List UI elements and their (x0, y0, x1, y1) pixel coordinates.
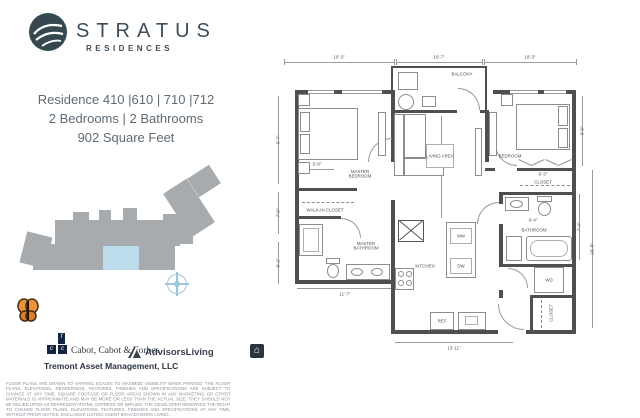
equal-housing-icon: ⌂ (250, 344, 264, 358)
sofa-back (394, 114, 404, 176)
floor-plan: 10'-3" 10'-7" 10'-3" 9'-7" 7'-6" 6'-2" 5… (270, 52, 620, 404)
building-block (73, 212, 89, 221)
room-label-closet: CLOSET (534, 180, 552, 185)
disclaimer: FLOOR PLANS ARE DRAWN TO VARYING SCALES … (6, 382, 244, 416)
bifold-door (545, 159, 558, 166)
linen-cabinet (506, 236, 522, 261)
wall (391, 110, 457, 113)
burner (398, 271, 404, 277)
room-label-living-area: LIVING AREA (426, 153, 455, 158)
closet-rod (302, 202, 354, 203)
dim-bedroom-height: 9'-8" (580, 127, 585, 136)
room-label-master-bedroom: MASTER BEDROOM (346, 169, 375, 179)
toilet-bowl (538, 202, 551, 216)
wall (499, 192, 503, 204)
toilet-bowl (327, 264, 339, 278)
window (308, 90, 334, 94)
dim-top-left: 10'-3" (333, 55, 344, 60)
room-label-kitchen: KITCHEN (415, 264, 434, 269)
brand-name: STRATUS (76, 20, 217, 43)
balcony-table (398, 72, 418, 90)
residence-bed-bath: 2 Bedrooms | 2 Bathrooms (0, 111, 252, 126)
room-label-coat-closet: CLOSET (549, 304, 554, 322)
appliance-label-ref: REF (438, 319, 447, 324)
balcony-side-table (422, 96, 436, 107)
residence-sqft: 902 Square Feet (0, 130, 252, 145)
brand-subtitle: RESIDENCES (86, 44, 173, 53)
dim-bath-width: 6'-4" (529, 218, 538, 223)
pillow (558, 106, 568, 126)
nightstand (298, 162, 310, 174)
balcony-wall (391, 66, 487, 68)
burner (398, 280, 404, 286)
dresser (489, 112, 497, 156)
room-label-bedroom: BEDROOM (499, 154, 522, 159)
dim-right-outer: 15'-8" (590, 243, 595, 254)
dim-closet-width: 6'-3" (539, 172, 548, 177)
door-arc (477, 202, 499, 224)
window (510, 90, 538, 94)
residence-numbers: Residence 410 |610 | 710 |712 (0, 92, 252, 107)
disclaimer-text: FLOOR PLANS ARE DRAWN TO VARYING SCALES … (6, 382, 230, 416)
dresser (378, 112, 386, 156)
kitchen-sink (465, 316, 478, 325)
unit-highlight (103, 246, 139, 270)
closet-rod (541, 300, 542, 328)
dim-line (396, 62, 482, 63)
ccf-logo-icon: c (58, 345, 67, 354)
dim-left-mbath: 6'-2" (276, 259, 281, 268)
nightstand (501, 94, 513, 106)
dim-line (395, 342, 513, 343)
door-arc (458, 88, 480, 110)
wall (572, 90, 576, 330)
room-label-walk-in-closet: WALK-IN CLOSET (306, 208, 343, 213)
building-block (99, 210, 111, 220)
dim-top-right: 10'-3" (524, 55, 535, 60)
dim-left-master: 9'-7" (276, 136, 281, 145)
wall (499, 224, 503, 267)
building-block (123, 208, 137, 220)
wall (530, 295, 533, 330)
sink-basin (351, 268, 363, 276)
stratus-logo-icon (28, 12, 68, 52)
door-arc (508, 268, 528, 288)
dim-kitchen-width: 13'-11" (447, 346, 460, 351)
ccf-logo-icon: c (47, 345, 56, 354)
shower-basin (303, 228, 319, 252)
dim-line (284, 62, 394, 63)
wall (530, 295, 576, 298)
sofa-seat (404, 114, 426, 158)
room-label-balcony: BALCONY (451, 72, 472, 77)
balcony-wall (391, 66, 393, 112)
door-arc (341, 218, 361, 238)
appliance-label-dw: DW (457, 264, 464, 269)
building-block (55, 220, 180, 246)
nightstand (298, 94, 310, 106)
tv-console (475, 128, 482, 176)
wall (499, 290, 503, 298)
sink-basin (371, 268, 383, 276)
dim-line (484, 62, 576, 63)
flyer-page: STRATUS RESIDENCES Residence 410 |610 | … (0, 0, 640, 418)
compass-icon (167, 274, 187, 294)
wall (299, 188, 357, 191)
dim-line (297, 288, 393, 289)
closet-rod (520, 185, 570, 186)
butterfly-logo-icon (16, 297, 40, 323)
wall (391, 200, 395, 334)
burner (406, 271, 412, 277)
dim-bed-width: 5'-8" (313, 162, 322, 167)
pillow (558, 128, 568, 148)
dim-bath-height: 7'-4" (577, 223, 582, 232)
dim-top-mid: 10'-7" (433, 55, 444, 60)
wall (299, 216, 341, 219)
burner (406, 280, 412, 286)
dim-left-wic: 7'-6" (276, 209, 281, 218)
bifold-door (518, 159, 531, 166)
window (544, 90, 566, 94)
balcony-wall (485, 66, 487, 112)
wall (391, 330, 498, 334)
wall (295, 280, 395, 284)
window (342, 90, 382, 94)
wall (526, 330, 576, 334)
entry-door-arc (498, 304, 524, 330)
building-keyplate (15, 168, 243, 303)
appliance-label-wd: WD (545, 278, 552, 283)
appliance-label-mw: MW (457, 234, 465, 239)
room-label-bathroom: BATHROOM (521, 228, 546, 233)
tremont-name: Tremont Asset Management, LLC (44, 361, 178, 371)
advisors-living-name: AdvisorsLiving (145, 347, 214, 358)
wall (485, 168, 495, 171)
bifold-door (558, 159, 571, 166)
bifold-door (531, 159, 544, 166)
bathtub-basin (530, 240, 568, 257)
room-label-master-bathroom: MASTER BATHROOM (352, 241, 381, 251)
wall (499, 192, 572, 195)
ccf-logo-icon: f (58, 333, 65, 344)
sink-basin (510, 200, 523, 208)
pillow (300, 134, 310, 154)
dim-master-bath-width: 11'-7" (340, 292, 351, 297)
pillow (300, 112, 310, 132)
balcony-chair (398, 94, 414, 110)
